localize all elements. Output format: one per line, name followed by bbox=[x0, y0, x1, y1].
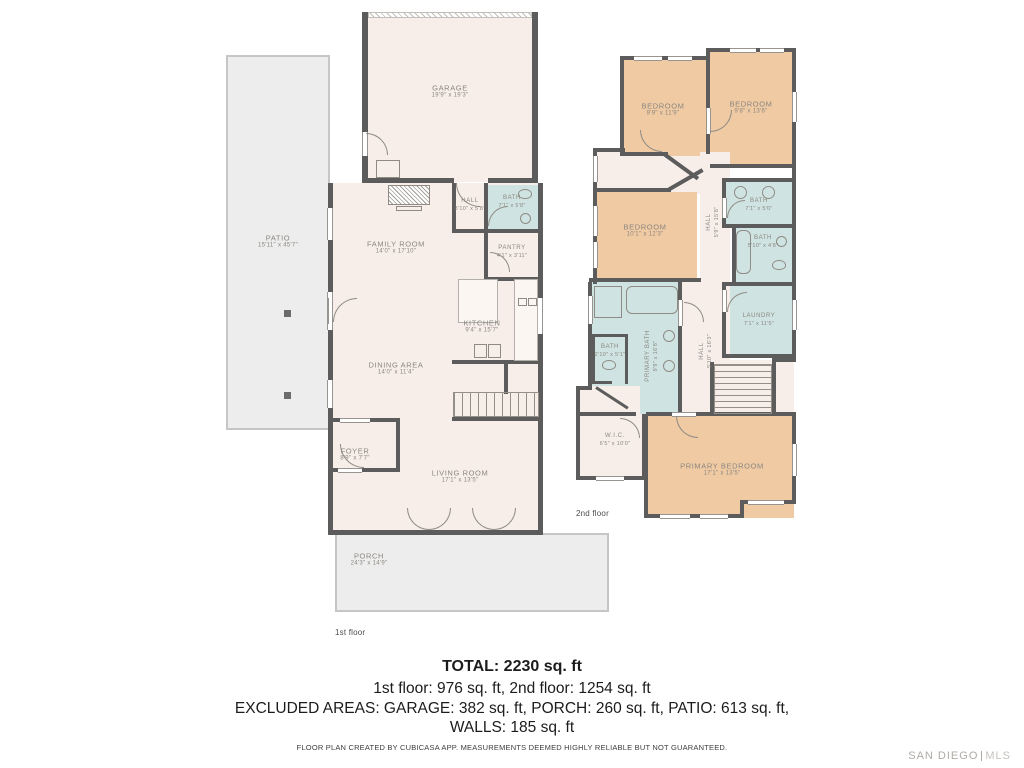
wall-segment bbox=[620, 152, 668, 156]
room-label-primary-bath: PRIMARY BATH9'9" x 16'8" bbox=[645, 330, 659, 382]
floor1-caption: 1st floor bbox=[335, 628, 365, 637]
wall-segment bbox=[593, 148, 625, 152]
room-label-foyer: FOYER8'9" x 7'7" bbox=[340, 447, 370, 464]
summary-floors: 1st floor: 976 sq. ft, 2nd floor: 1254 s… bbox=[0, 680, 1024, 698]
door-opening bbox=[338, 468, 362, 473]
wall-segment bbox=[592, 334, 595, 384]
kitchen-counter bbox=[514, 279, 538, 361]
window-marker bbox=[700, 514, 728, 519]
hearth-icon bbox=[396, 206, 422, 211]
room-label-bedroom-tr: BEDROOM9'8" x 13'6" bbox=[730, 100, 773, 117]
wall-segment bbox=[592, 334, 628, 337]
wall-segment bbox=[644, 514, 744, 518]
mls-logo-divider bbox=[981, 751, 982, 761]
wall-segment bbox=[396, 418, 400, 472]
wall-segment bbox=[589, 278, 701, 282]
mls-logo-left: SAN DIEGO bbox=[908, 750, 978, 762]
room-label-bath-1f: BATH7'1" x 5'8" bbox=[498, 195, 525, 209]
bathtub-icon bbox=[626, 286, 678, 314]
window-marker bbox=[792, 300, 797, 330]
toilet-icon bbox=[772, 260, 786, 270]
window-marker bbox=[588, 296, 593, 324]
garage-door-marker bbox=[368, 12, 532, 18]
room-label-bath-small: BATH2'10" x 5'1" bbox=[595, 344, 626, 358]
stairs-icon bbox=[714, 364, 772, 414]
room-label-kitchen: KITCHEN9'4" x 15'7" bbox=[463, 319, 500, 336]
wall-segment bbox=[538, 183, 543, 535]
wall-segment bbox=[484, 231, 488, 279]
sink-icon bbox=[520, 213, 531, 224]
wall-segment bbox=[644, 416, 648, 518]
wall-segment bbox=[504, 364, 508, 394]
window-marker bbox=[748, 500, 784, 505]
window-marker bbox=[327, 380, 333, 408]
floor2-caption: 2nd floor bbox=[576, 509, 609, 518]
room-label-family-room: FAMILY ROOM14'0" x 17'10" bbox=[367, 240, 425, 257]
kitchen-sink-icon bbox=[518, 298, 527, 306]
porch-area bbox=[335, 533, 609, 612]
patio-post bbox=[284, 310, 291, 317]
window-marker bbox=[327, 208, 333, 240]
sink-icon bbox=[663, 360, 675, 372]
window-marker bbox=[340, 418, 370, 423]
room-label-primary-bedroom: PRIMARY BEDROOM17'1" x 13'5" bbox=[680, 462, 764, 479]
room-label-bath-right: BATH5'10" x 4'8" bbox=[748, 235, 779, 249]
wall-segment bbox=[620, 56, 624, 156]
room-label-laundry: LAUNDRY7'1" x 11'5" bbox=[743, 313, 776, 327]
wall-segment bbox=[722, 224, 796, 228]
room-label-bath-top: BATH7'1" x 5'0" bbox=[745, 198, 772, 212]
room-label-pantry: PANTRY4'1" x 3'11" bbox=[497, 245, 527, 259]
window-marker bbox=[596, 476, 624, 481]
room-label-garage: GARAGE19'9" x 19'3" bbox=[432, 84, 469, 101]
mls-logo-right: MLS bbox=[985, 750, 1011, 762]
wall-segment bbox=[488, 178, 538, 183]
wall-segment bbox=[328, 530, 543, 535]
room-label-bedroom-tl: BEDROOM9'9" x 11'9" bbox=[642, 102, 685, 119]
room-label-hall-upper: HALL5'9" x 15'8" bbox=[706, 207, 720, 238]
window-marker bbox=[760, 48, 784, 53]
shower-icon bbox=[594, 286, 622, 318]
wall-segment bbox=[576, 386, 580, 480]
window-marker bbox=[593, 206, 598, 236]
room-label-bedroom-ml: BEDROOM10'1" x 12'3" bbox=[624, 223, 667, 240]
wall-segment bbox=[362, 12, 368, 183]
floor-plan-canvas: PATIO15'11" x 45'7" GARAGE19'9" x 19'3" … bbox=[0, 0, 1024, 768]
stairs-icon bbox=[453, 392, 539, 417]
room-label-dining-area: DINING AREA14'0" x 11'4" bbox=[369, 361, 424, 378]
door-opening bbox=[678, 300, 683, 326]
sink-icon bbox=[663, 330, 675, 342]
fireplace-icon bbox=[388, 185, 430, 205]
wall-segment bbox=[740, 500, 744, 518]
window-marker bbox=[730, 48, 756, 53]
wall-segment bbox=[772, 360, 776, 414]
summary-walls: WALLS: 185 sq. ft bbox=[0, 719, 1024, 737]
kitchen-island bbox=[458, 279, 498, 323]
room-label-patio: PATIO15'11" x 45'7" bbox=[258, 234, 298, 251]
utility-box-icon bbox=[376, 160, 400, 178]
patio-post bbox=[284, 392, 291, 399]
window-marker bbox=[593, 242, 598, 268]
summary-total: TOTAL: 2230 sq. ft bbox=[0, 658, 1024, 676]
wall-segment bbox=[592, 381, 612, 384]
room-label-porch: PORCH24'3" x 14'9" bbox=[351, 552, 388, 569]
wall-segment bbox=[362, 178, 454, 183]
room-label-hall-lower: HALL5'10" x 16'3" bbox=[699, 334, 713, 368]
summary-excluded: EXCLUDED AREAS: GARAGE: 382 sq. ft, PORC… bbox=[0, 700, 1024, 718]
wall-segment bbox=[532, 12, 538, 183]
kitchen-sink-icon bbox=[528, 298, 537, 306]
wall-segment bbox=[578, 412, 636, 416]
window-marker bbox=[792, 444, 797, 476]
window-marker bbox=[593, 156, 598, 182]
toilet-icon bbox=[602, 360, 616, 370]
wall-segment bbox=[625, 334, 628, 384]
room-label-wic: W.I.C.6'5" x 10'0" bbox=[600, 433, 631, 447]
window-marker bbox=[668, 56, 692, 61]
wall-segment bbox=[706, 48, 710, 154]
wall-segment bbox=[710, 164, 794, 168]
appliance-icon bbox=[488, 344, 501, 358]
summary-disclaimer: FLOOR PLAN CREATED BY CUBICASA APP. MEAS… bbox=[0, 743, 1024, 752]
room-label-hall-1f: HALL3'10" x 5'8" bbox=[455, 198, 486, 212]
wall-segment bbox=[593, 188, 671, 192]
appliance-icon bbox=[474, 344, 487, 358]
wall-segment bbox=[722, 178, 796, 182]
window-marker bbox=[792, 92, 797, 122]
window-marker bbox=[660, 514, 690, 519]
wall-segment bbox=[452, 417, 543, 421]
mls-logo: SAN DIEGOMLS bbox=[908, 750, 1011, 762]
wall-segment bbox=[452, 229, 543, 233]
room-label-living-room: LIVING ROOM17'1" x 13'5" bbox=[432, 469, 489, 486]
window-marker bbox=[634, 56, 662, 61]
